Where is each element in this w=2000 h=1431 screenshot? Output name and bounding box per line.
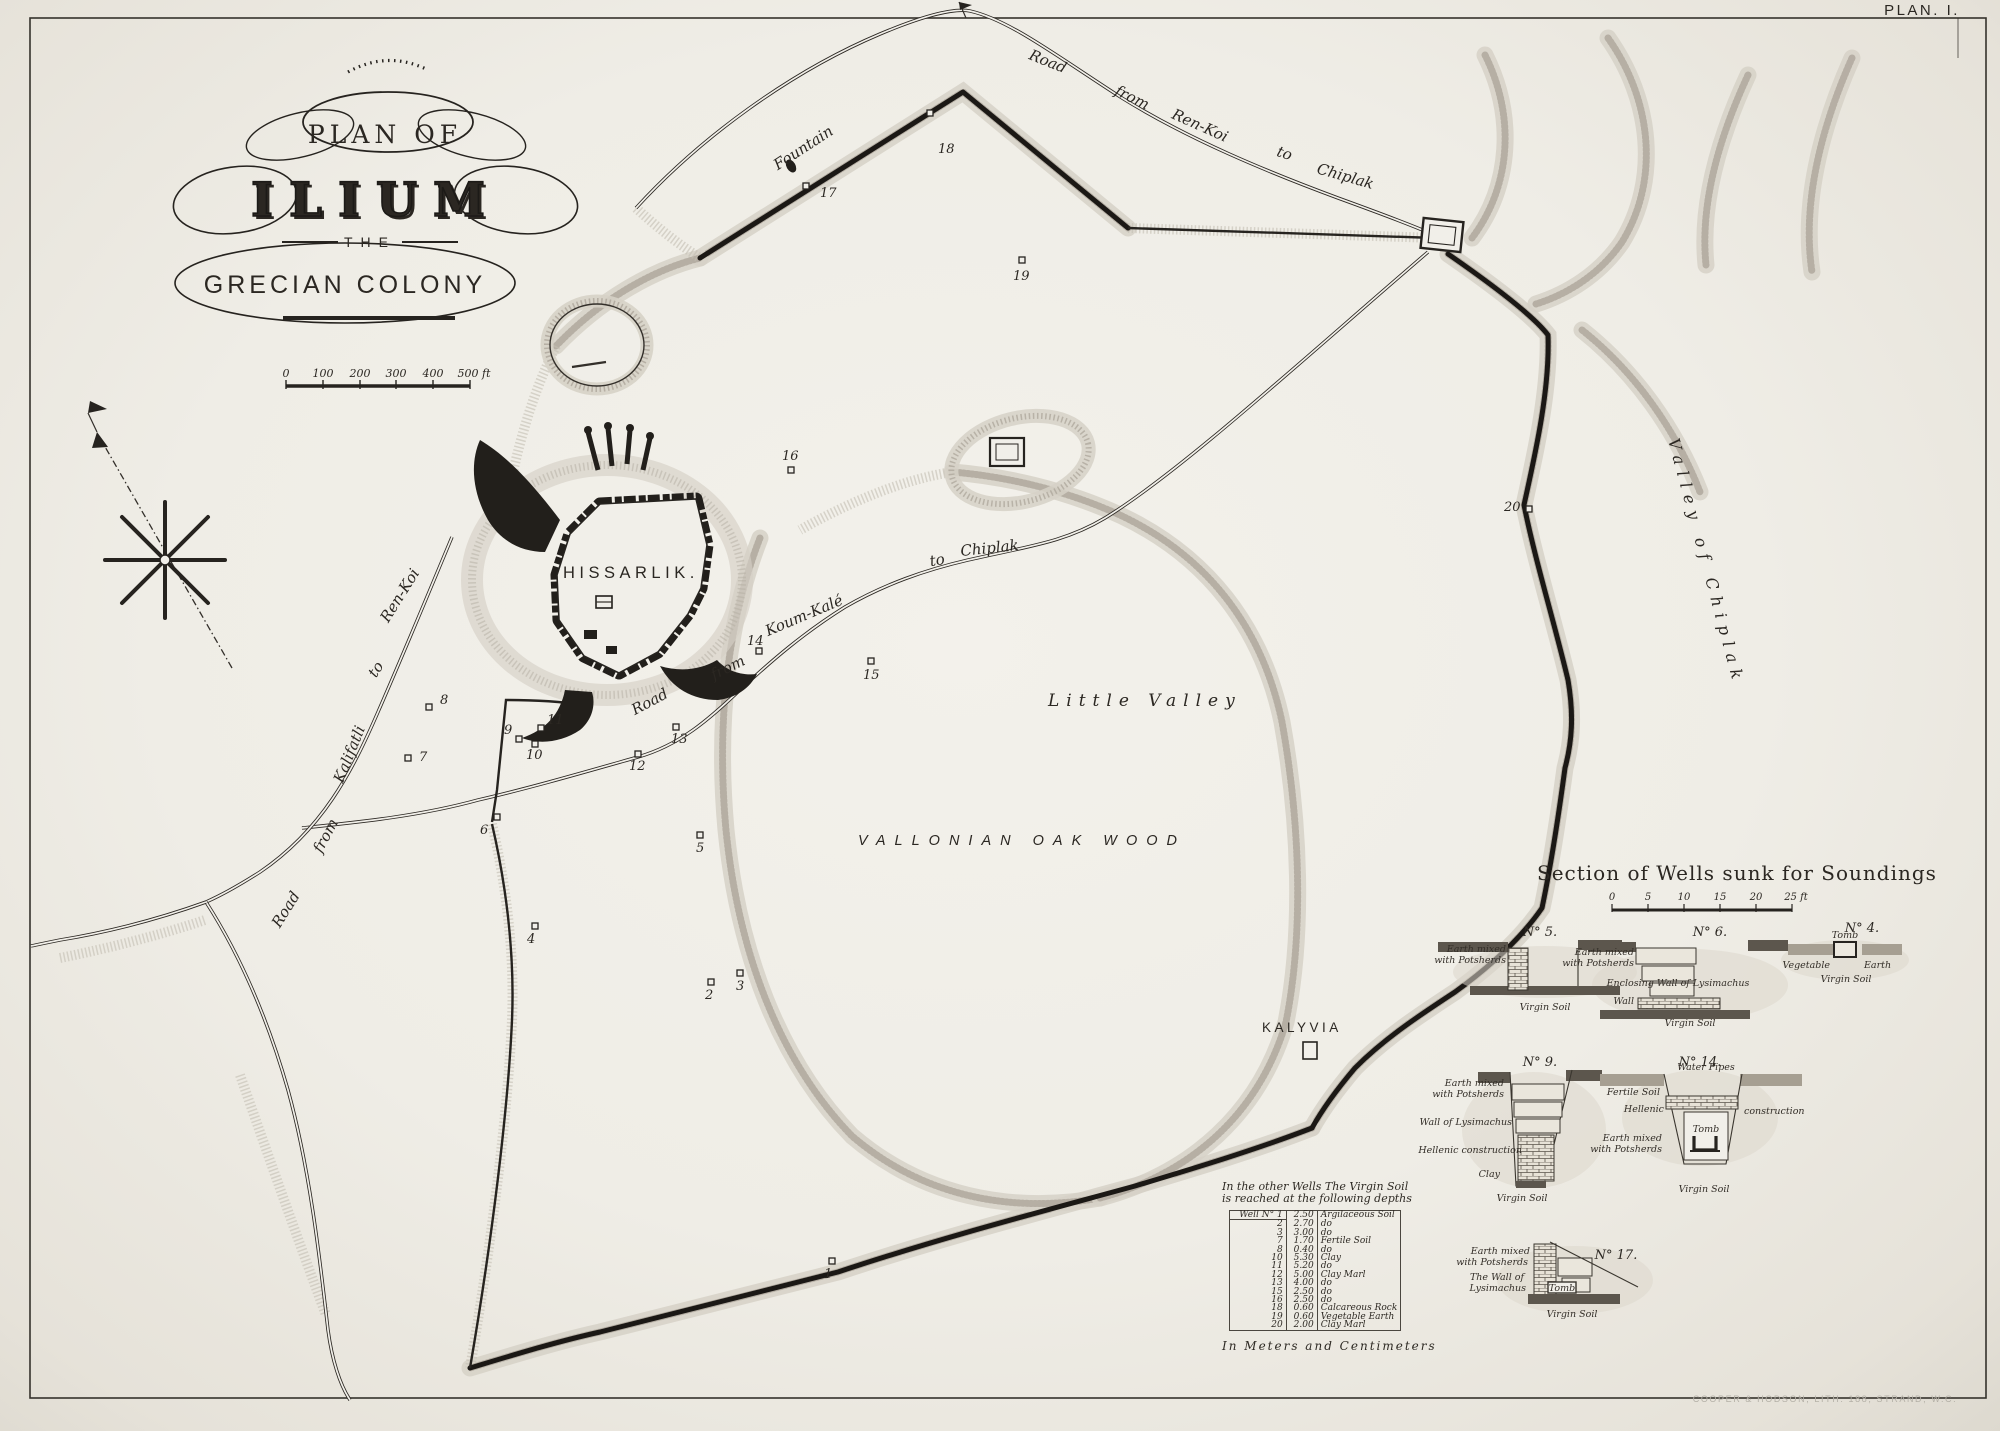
well-label: Earth mixed xyxy=(1444,1078,1504,1089)
table-row: 125.00Clay Marl xyxy=(1229,1271,1401,1279)
well-number-10: 10 xyxy=(526,748,543,763)
table-row: 152.50do xyxy=(1229,1288,1401,1296)
well-marker-4 xyxy=(532,923,538,929)
sections-title: Section of Wells sunk for Soundings xyxy=(1537,861,1937,885)
well-marker-20 xyxy=(1526,506,1532,512)
label-little-valley: Little Valley xyxy=(1047,691,1242,711)
well-number-13: 13 xyxy=(671,732,688,747)
well-marker-2 xyxy=(708,979,714,985)
depth-table-grid: Well N° 12.50Argilaceous Soil22.70do33.0… xyxy=(1229,1210,1402,1331)
label-oak-wood: VALLONIAN OAK WOOD xyxy=(858,833,1186,849)
well-label: with Potsherds xyxy=(1432,1089,1504,1100)
compass-flag xyxy=(88,401,107,413)
well-marker-7 xyxy=(405,755,411,761)
sections-scale-tick: 20 xyxy=(1749,892,1763,903)
well-marker-6 xyxy=(494,814,500,820)
well-number-20: 20 xyxy=(1503,500,1521,515)
well-marker-8 xyxy=(426,704,432,710)
well-marker-16 xyxy=(788,467,794,473)
well-section-number: N° 5. xyxy=(1522,925,1557,940)
table-row: Well N° 12.50Argilaceous Soil xyxy=(1229,1211,1401,1220)
well-marker-9 xyxy=(516,736,522,742)
road-word: from xyxy=(1111,81,1152,113)
well-label: Wall of Lysimachus xyxy=(1420,1117,1513,1128)
scale-tick: 0 xyxy=(283,367,290,380)
label-kalyvia: KALYVIA xyxy=(1262,1020,1342,1035)
lithographer-imprint: COOPER & HODSON, LITH. 188, STRAND, W.C. xyxy=(1645,1394,2000,1404)
scale-tick: 200 xyxy=(349,367,371,380)
well-marker-5 xyxy=(697,832,703,838)
well-label: Earth mixed xyxy=(1470,1246,1530,1257)
road-word: to xyxy=(1275,142,1295,164)
well-label: Lysimachus xyxy=(1468,1283,1526,1294)
well-label: Hellenic construction xyxy=(1417,1145,1522,1156)
well-number-5: 5 xyxy=(696,841,704,856)
well-section-number: N° 17. xyxy=(1594,1248,1638,1263)
well-marker-1 xyxy=(829,1258,835,1264)
kalyvia-building xyxy=(1303,1042,1317,1059)
road-word: to xyxy=(928,550,946,570)
sections-scale-tick: 15 xyxy=(1714,892,1727,903)
well-label: Tomb xyxy=(1549,1283,1575,1294)
well-number-2: 2 xyxy=(704,988,713,1003)
well-marker-18 xyxy=(927,110,933,116)
well-sections: Section of Wells sunk for Soundings 0 5 … xyxy=(1417,861,1937,1320)
well-number-18: 18 xyxy=(938,142,955,157)
well-label: Fertile Soil xyxy=(1606,1087,1660,1098)
well-label: Virgin Soil xyxy=(1497,1193,1548,1204)
table-row: 22.70do xyxy=(1229,1220,1401,1229)
well-label: Water Pipes xyxy=(1677,1062,1735,1073)
well-marker-3 xyxy=(737,970,743,976)
well-number-12: 12 xyxy=(629,759,646,774)
well-number-17: 17 xyxy=(820,186,837,201)
well-number-6: 6 xyxy=(480,823,488,838)
fort-northeast xyxy=(1421,218,1464,252)
well-label: Virgin Soil xyxy=(1679,1184,1730,1195)
well-marker-11 xyxy=(538,725,544,731)
pond-mark xyxy=(572,362,606,367)
depth-table: In the other Wells The Virgin Soil is re… xyxy=(1222,1181,1408,1353)
well-number-8: 8 xyxy=(440,693,448,708)
table-row: 71.70Fertile Soil xyxy=(1229,1237,1401,1245)
title-line3: THE xyxy=(344,234,396,250)
well-number-14: 14 xyxy=(747,634,764,649)
label-valley-chiplak: Valley of Chiplak xyxy=(1664,436,1748,688)
well-label: with Potsherds xyxy=(1562,958,1634,969)
well-marker-17 xyxy=(803,183,809,189)
plate-number: PLAN. I. xyxy=(1884,2,1960,19)
well-label: The Wall of xyxy=(1470,1272,1526,1283)
road-word: to xyxy=(364,658,387,680)
well-label: Hellenic xyxy=(1623,1104,1665,1115)
sections-scale-tick: 5 xyxy=(1645,892,1651,903)
well-label: Virgin Soil xyxy=(1520,1002,1571,1013)
road-word: Kalifatli xyxy=(329,723,369,786)
table-row: 105.30Clay xyxy=(1229,1254,1401,1262)
scale-tick: 100 xyxy=(313,367,334,380)
citadel-outline xyxy=(557,499,707,673)
well-label: Vegetable xyxy=(1782,960,1830,971)
sections-scale-tick: 10 xyxy=(1678,892,1691,903)
well-marker-13 xyxy=(673,724,679,730)
road-word: Chiplak xyxy=(1315,159,1376,192)
well-marker-15 xyxy=(868,658,874,664)
scale-tick: 300 xyxy=(386,367,407,380)
sections-scale-tick: 25 ft xyxy=(1783,892,1809,903)
well-number-7: 7 xyxy=(419,750,428,765)
fort-middle xyxy=(990,438,1024,466)
scale-tick: 500 ft xyxy=(458,367,492,380)
well-label: Tomb xyxy=(1693,1124,1719,1135)
well-label: Earth mixed xyxy=(1602,1133,1662,1144)
wall-west xyxy=(470,824,513,1368)
table-row: 202.00Clay Marl xyxy=(1229,1321,1401,1330)
road-word: Road xyxy=(267,888,303,931)
depth-table-footer: In Meters and Centimeters xyxy=(1222,1339,1408,1353)
title-line4: GRECIAN COLONY xyxy=(204,271,486,299)
sections-scale-tick: 0 xyxy=(1609,892,1616,903)
well-label: Virgin Soil xyxy=(1821,974,1872,985)
well-label: Enclosing Wall of Lysimachus xyxy=(1606,978,1750,989)
depth-table-heading2: is reached at the following depths xyxy=(1222,1193,1408,1205)
well-label: Virgin Soil xyxy=(1547,1309,1598,1320)
cartouche-plume xyxy=(348,60,428,72)
well-label: with Potsherds xyxy=(1590,1144,1662,1155)
well-marker-12 xyxy=(635,751,641,757)
label-hissarlik: HISSARLIK. xyxy=(563,564,699,582)
table-row: 134.00do xyxy=(1229,1279,1401,1287)
well-label: Clay xyxy=(1479,1169,1501,1180)
table-row: 33.00do xyxy=(1229,1229,1401,1237)
well-number-3: 3 xyxy=(736,979,744,994)
compass-rose xyxy=(88,401,232,668)
well-label: Virgin Soil xyxy=(1665,1018,1716,1029)
table-row: 190.60Vegetable Earth xyxy=(1229,1313,1401,1321)
title-cartouche: PLAN OF ILIUM ILIUM THE GRECIAN COLONY xyxy=(169,60,582,323)
label-fountain: Fountain xyxy=(769,122,836,174)
well-section-number: N° 9. xyxy=(1522,1055,1557,1070)
well-label: construction xyxy=(1744,1106,1805,1117)
well-section-number: N° 6. xyxy=(1692,925,1727,940)
table-row: 115.20do xyxy=(1229,1262,1401,1270)
well-number-19: 19 xyxy=(1013,269,1030,284)
well-label: Earth xyxy=(1863,960,1891,971)
well-marker-10 xyxy=(532,741,538,747)
title-line2: ILIUM xyxy=(251,173,501,228)
well-label: Tomb xyxy=(1832,930,1858,941)
well-number-16: 16 xyxy=(782,449,799,464)
title-line1: PLAN OF xyxy=(308,120,462,149)
road-word: Chiplak xyxy=(960,536,1020,560)
compass-arrowhead xyxy=(92,432,108,448)
map-plate: PLAN. I. xyxy=(0,0,2000,1431)
table-row: 80.40do xyxy=(1229,1246,1401,1254)
map-canvas: PLAN. I. xyxy=(0,0,2000,1431)
well-number-9: 9 xyxy=(504,723,512,738)
title-underline xyxy=(283,316,455,320)
well-number-11: 11 xyxy=(547,713,564,728)
well-label: Earth mixed xyxy=(1446,944,1506,955)
scale-bar: 0 100 200 300 400 500 ft xyxy=(283,367,492,389)
well-number-4: 4 xyxy=(526,932,535,947)
road-renkoi-chiplak xyxy=(636,10,1436,236)
well-label: with Potsherds xyxy=(1434,955,1506,966)
scale-tick: 400 xyxy=(422,367,444,380)
well-number-1: 1 xyxy=(824,1267,832,1282)
well-label: with Potsherds xyxy=(1456,1257,1528,1268)
well-label: Wall xyxy=(1613,996,1634,1007)
well-label: Earth mixed xyxy=(1574,947,1634,958)
road-word: Ren-Koi xyxy=(376,565,423,626)
well-number-15: 15 xyxy=(863,668,880,683)
well-marker-19 xyxy=(1019,257,1025,263)
